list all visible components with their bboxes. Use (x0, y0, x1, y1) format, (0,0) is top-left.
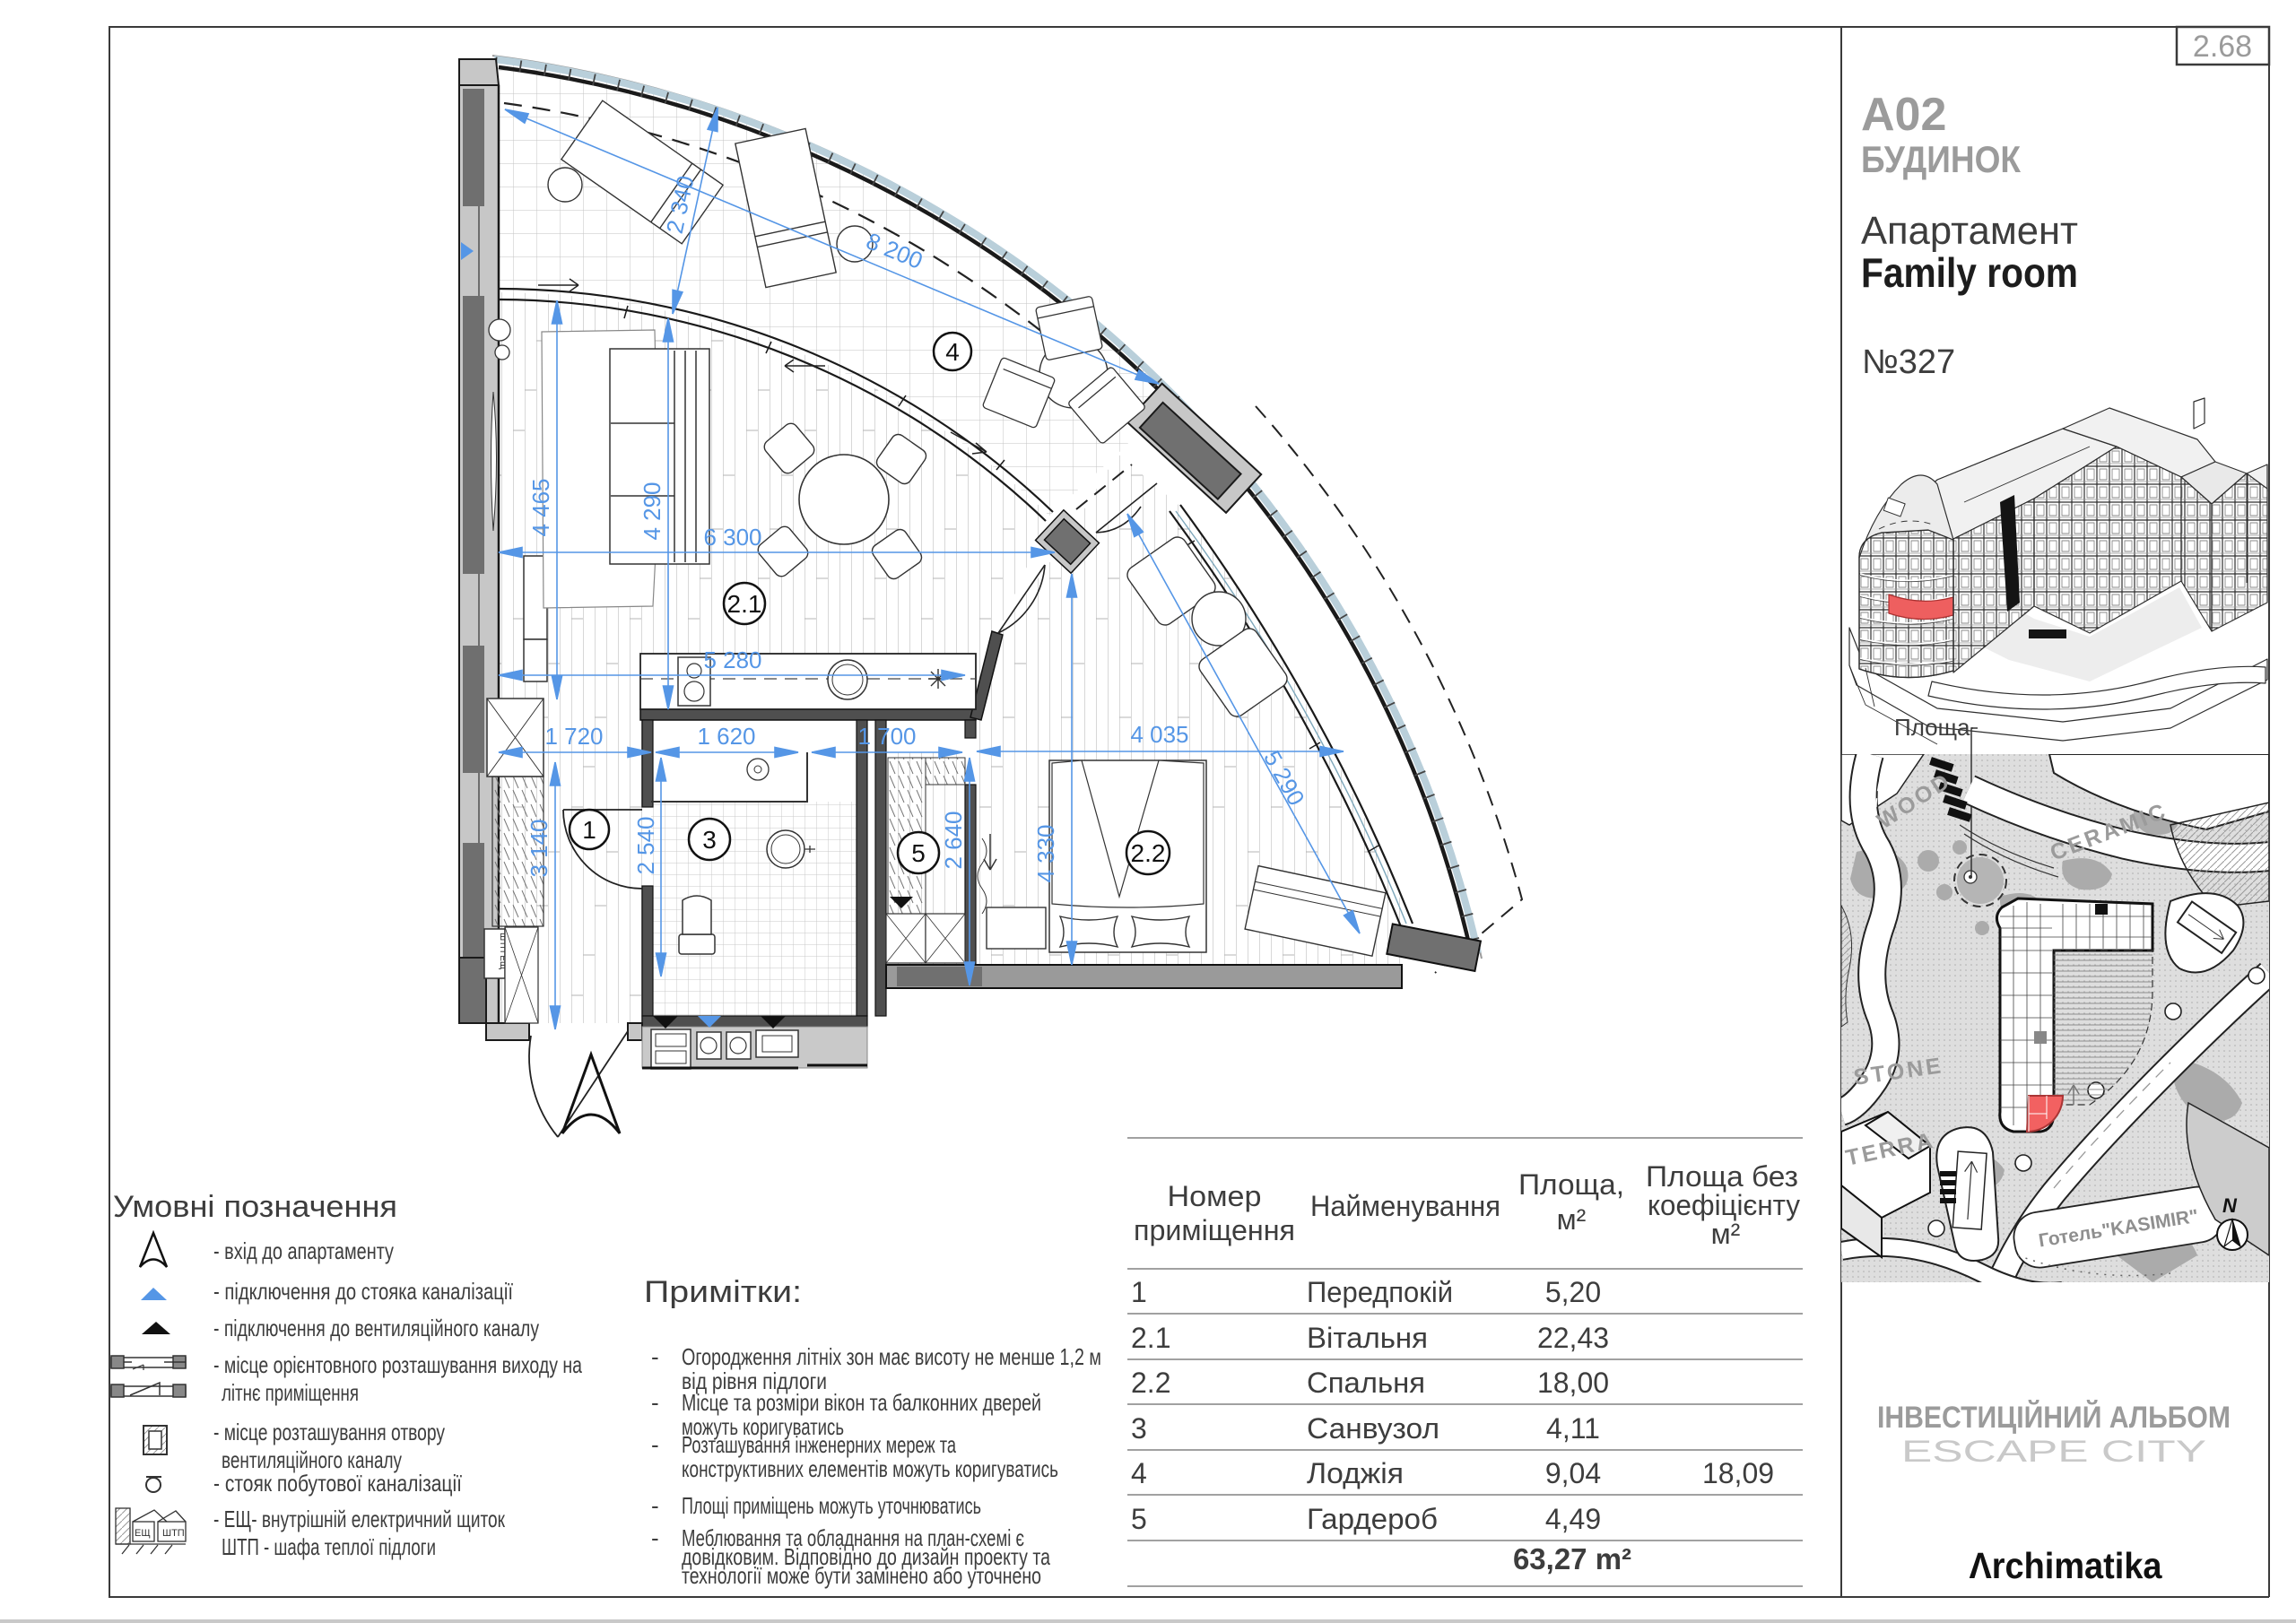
svg-text:4 465: 4 465 (527, 478, 554, 536)
svg-text:6 300: 6 300 (703, 524, 761, 551)
svg-text:5: 5 (911, 839, 926, 867)
svg-text:5: 5 (1131, 1503, 1147, 1535)
svg-text:A02: A02 (1861, 89, 1946, 141)
svg-text:ЕЩ: ЕЩ (135, 1528, 151, 1539)
svg-text:2.1: 2.1 (727, 590, 762, 618)
svg-text:Лоджія: Лоджія (1307, 1457, 1404, 1489)
svg-text:- місце орієнтовного розташува: - місце орієнтовного розташування виходу… (213, 1351, 582, 1378)
svg-text:- вхід до апартаменту: - вхід до апартаменту (213, 1237, 394, 1264)
svg-text:конструктивних елементів можут: конструктивних елементів можуть коригува… (682, 1455, 1058, 1482)
svg-text:2 540: 2 540 (632, 816, 659, 874)
svg-text:5 280: 5 280 (703, 647, 761, 673)
svg-text:приміщення: приміщення (1134, 1214, 1295, 1246)
svg-text:технології може бути замінено: технології може бути замінено або уточне… (682, 1562, 1041, 1589)
svg-text:Площі приміщень можуть уточнюв: Площі приміщень можуть уточнюватись (682, 1492, 981, 1519)
svg-text:м²: м² (1711, 1218, 1741, 1250)
svg-text:Family room: Family room (1861, 249, 2078, 296)
svg-text:1 720: 1 720 (544, 723, 603, 750)
svg-text:ШТП: ШТП (162, 1528, 185, 1539)
svg-text:3 140: 3 140 (526, 819, 552, 877)
svg-text:м²: м² (1557, 1203, 1587, 1236)
svg-text:- місце розташування отвору: - місце розташування отвору (213, 1419, 445, 1445)
svg-text:4 290: 4 290 (639, 482, 665, 540)
svg-text:5,20: 5,20 (1545, 1276, 1601, 1308)
svg-text:3: 3 (702, 826, 717, 854)
svg-text:-: - (651, 1492, 659, 1519)
svg-text:- підключення до вентиляційног: - підключення до вентиляційного каналу (213, 1315, 539, 1341)
svg-text:Розташування інженерних мереж: Розташування інженерних мереж та (682, 1431, 956, 1458)
svg-text:- ЕЩ- внутрішній електричний щ: - ЕЩ- внутрішній електричний щиток (213, 1506, 505, 1532)
svg-text:2.2: 2.2 (1131, 839, 1166, 867)
svg-text:Апартамент: Апартамент (1861, 209, 2078, 253)
svg-text:2.2: 2.2 (1131, 1367, 1170, 1399)
svg-text:1: 1 (582, 816, 596, 844)
svg-text:9,04: 9,04 (1545, 1457, 1601, 1489)
svg-text:3: 3 (1131, 1412, 1147, 1445)
svg-text:ШТП - шафа теплої підлоги: ШТП - шафа теплої підлоги (222, 1533, 436, 1560)
svg-text:4 330: 4 330 (1032, 824, 1059, 882)
svg-text:22,43: 22,43 (1537, 1322, 1609, 1354)
svg-text:літнє приміщення: літнє приміщення (222, 1379, 359, 1406)
svg-text:Спальня: Спальня (1307, 1367, 1425, 1399)
svg-text:4,49: 4,49 (1545, 1503, 1601, 1535)
svg-text:N: N (2222, 1194, 2238, 1217)
svg-text:Огородження літніх зон має вис: Огородження літніх зон має висоту не мен… (682, 1343, 1101, 1370)
svg-text:ESCAPE CITY: ESCAPE CITY (1901, 1435, 2206, 1469)
svg-text:Умовні позначення: Умовні позначення (113, 1190, 397, 1224)
svg-text:Вітальня: Вітальня (1307, 1322, 1428, 1354)
svg-text:63,27 m²: 63,27 m² (1513, 1542, 1631, 1575)
svg-text:Санвузол: Санвузол (1307, 1412, 1439, 1445)
svg-text:Площа без: Площа без (1646, 1160, 1798, 1193)
svg-text:18,09: 18,09 (1702, 1457, 1774, 1489)
svg-text:Номер: Номер (1168, 1180, 1262, 1212)
svg-text:-: - (651, 1343, 659, 1370)
svg-text:4,11: 4,11 (1546, 1412, 1600, 1445)
svg-text:- підключення до стояка каналі: - підключення до стояка каналізації (213, 1278, 513, 1305)
svg-text:1 700: 1 700 (857, 723, 916, 750)
svg-text:- стояк побутової каналізації: - стояк побутової каналізації (213, 1470, 462, 1497)
svg-text:2.68: 2.68 (2193, 30, 2252, 64)
svg-text:№327: №327 (1862, 343, 1955, 381)
svg-text:Λrchimatika: Λrchimatika (1970, 1545, 2163, 1586)
svg-text:Площа: Площа (1894, 714, 1970, 741)
svg-text:18,00: 18,00 (1537, 1367, 1609, 1399)
svg-text:Місце та розміри вікон та балк: Місце та розміри вікон та балконних двер… (682, 1389, 1041, 1416)
svg-text:-: - (651, 1389, 659, 1416)
svg-text:1: 1 (1131, 1276, 1147, 1308)
svg-text:4: 4 (1131, 1457, 1147, 1489)
svg-text:-: - (651, 1524, 659, 1551)
svg-text:ІНВЕСТИЦІЙНИЙ АЛЬБОМ: ІНВЕСТИЦІЙНИЙ АЛЬБОМ (1877, 1400, 2231, 1435)
svg-text:-: - (651, 1431, 659, 1458)
svg-text:2.1: 2.1 (1131, 1322, 1170, 1354)
svg-text:4 035: 4 035 (1130, 721, 1188, 748)
svg-text:коефіцієнту: коефіцієнту (1648, 1189, 1800, 1221)
svg-text:1 620: 1 620 (697, 723, 755, 750)
svg-text:Передпокій: Передпокій (1307, 1276, 1453, 1308)
svg-text:2 640: 2 640 (940, 811, 967, 869)
svg-text:Гардероб: Гардероб (1307, 1503, 1438, 1535)
svg-text:4: 4 (945, 338, 960, 366)
svg-text:БУДИНОК: БУДИНОК (1861, 138, 2021, 180)
svg-text:Найменування: Найменування (1310, 1190, 1500, 1222)
svg-text:Примітки:: Примітки: (644, 1275, 802, 1309)
svg-text:Площа,: Площа, (1518, 1168, 1624, 1201)
